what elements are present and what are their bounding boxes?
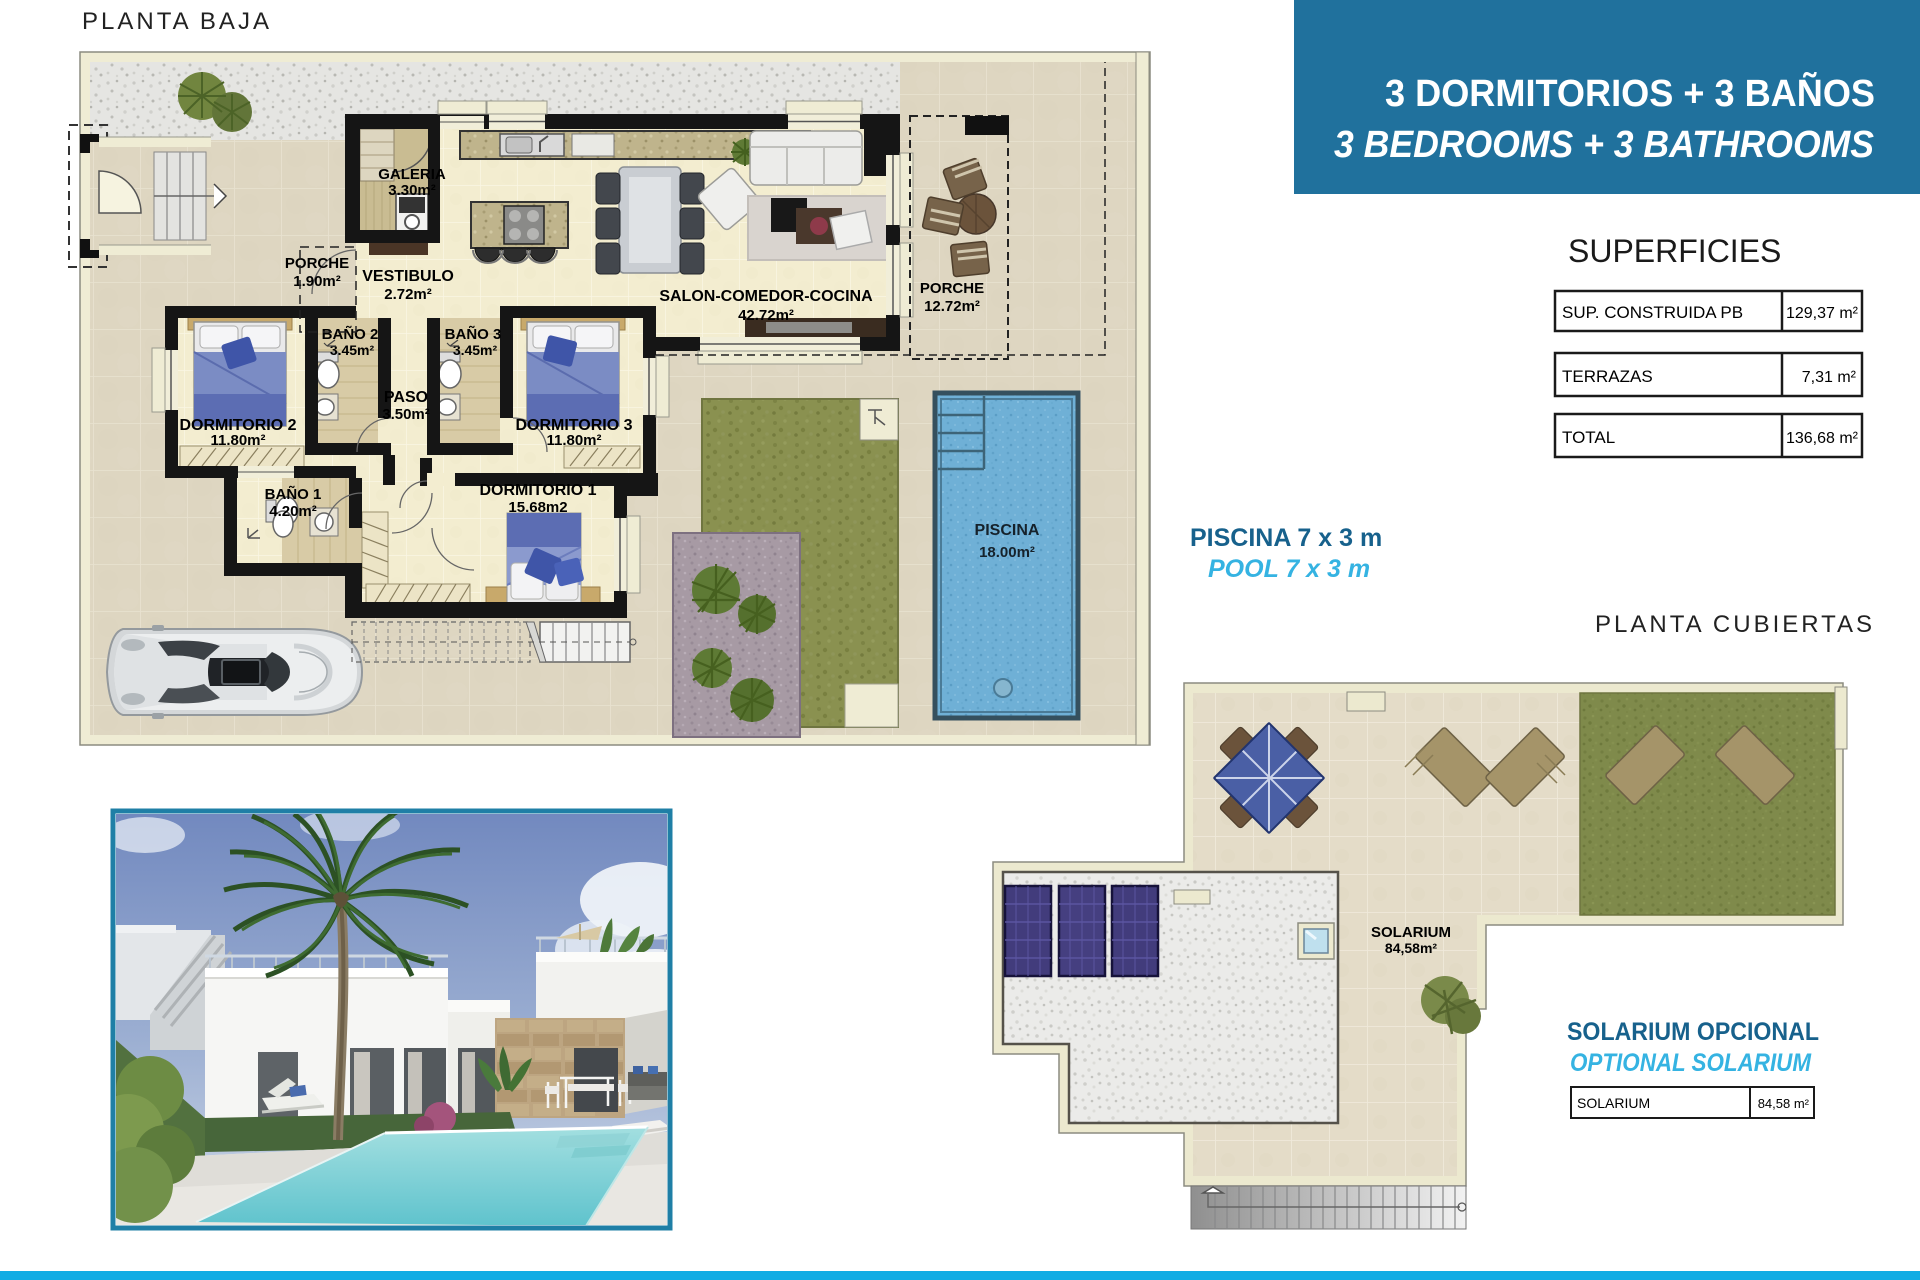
svg-text:BAÑO 2: BAÑO 2	[322, 325, 379, 343]
svg-text:3.45m²: 3.45m²	[453, 342, 498, 358]
svg-text:84,58m²: 84,58m²	[1385, 940, 1437, 956]
svg-text:POOL 7 x 3 m: POOL 7 x 3 m	[1208, 555, 1370, 583]
svg-text:3.30m²: 3.30m²	[388, 182, 436, 199]
svg-text:TOTAL: TOTAL	[1562, 428, 1615, 447]
svg-text:PLANTA CUBIERTAS: PLANTA CUBIERTAS	[1595, 611, 1875, 638]
svg-text:SOLARIUM: SOLARIUM	[1577, 1095, 1650, 1111]
svg-text:12.72m²: 12.72m²	[924, 298, 980, 315]
svg-text:PORCHE: PORCHE	[285, 255, 349, 272]
svg-text:136,68 m²: 136,68 m²	[1786, 430, 1859, 447]
svg-text:84,58 m²: 84,58 m²	[1758, 1096, 1810, 1111]
svg-text:SUP. CONSTRUIDA PB: SUP. CONSTRUIDA PB	[1562, 303, 1743, 322]
svg-text:SOLARIUM: SOLARIUM	[1371, 924, 1451, 941]
svg-text:PASO: PASO	[384, 389, 428, 406]
svg-text:4.20m²: 4.20m²	[269, 503, 317, 520]
svg-text:7,31 m²: 7,31 m²	[1802, 369, 1857, 386]
svg-text:OPTIONAL SOLARIUM: OPTIONAL SOLARIUM	[1570, 1049, 1812, 1077]
svg-text:SOLARIUM OPCIONAL: SOLARIUM OPCIONAL	[1567, 1018, 1819, 1046]
svg-text:BAÑO 3: BAÑO 3	[445, 325, 502, 343]
svg-text:3 DORMITORIOS + 3 BAÑOS: 3 DORMITORIOS + 3 BAÑOS	[1385, 71, 1875, 115]
svg-text:PORCHE: PORCHE	[920, 280, 984, 297]
svg-text:42.72m²: 42.72m²	[738, 307, 794, 324]
svg-text:VESTIBULO: VESTIBULO	[362, 268, 454, 285]
svg-text:11.80m²: 11.80m²	[546, 432, 601, 449]
svg-text:PLANTA BAJA: PLANTA BAJA	[82, 8, 272, 35]
svg-text:SALON-COMEDOR-COCINA: SALON-COMEDOR-COCINA	[659, 288, 873, 305]
svg-text:11.80m²: 11.80m²	[210, 432, 265, 449]
svg-text:SUPERFICIES: SUPERFICIES	[1568, 233, 1781, 269]
svg-text:3.45m²: 3.45m²	[330, 342, 375, 358]
svg-text:15.68m2: 15.68m2	[508, 499, 567, 516]
svg-text:3.50m²: 3.50m²	[382, 406, 430, 423]
svg-text:PISCINA: PISCINA	[975, 522, 1040, 539]
svg-text:18.00m²: 18.00m²	[979, 544, 1035, 561]
svg-text:BAÑO 1: BAÑO 1	[265, 485, 322, 503]
svg-text:TERRAZAS: TERRAZAS	[1562, 367, 1653, 386]
svg-text:2.72m²: 2.72m²	[384, 286, 432, 303]
svg-text:GALERIA: GALERIA	[378, 166, 446, 183]
svg-text:3 BEDROOMS + 3 BATHROOMS: 3 BEDROOMS + 3 BATHROOMS	[1334, 124, 1874, 166]
svg-text:DORMITORIO 1: DORMITORIO 1	[479, 482, 596, 499]
svg-text:129,37 m²: 129,37 m²	[1786, 305, 1859, 322]
svg-text:PISCINA 7 x 3 m: PISCINA 7 x 3 m	[1190, 524, 1382, 552]
